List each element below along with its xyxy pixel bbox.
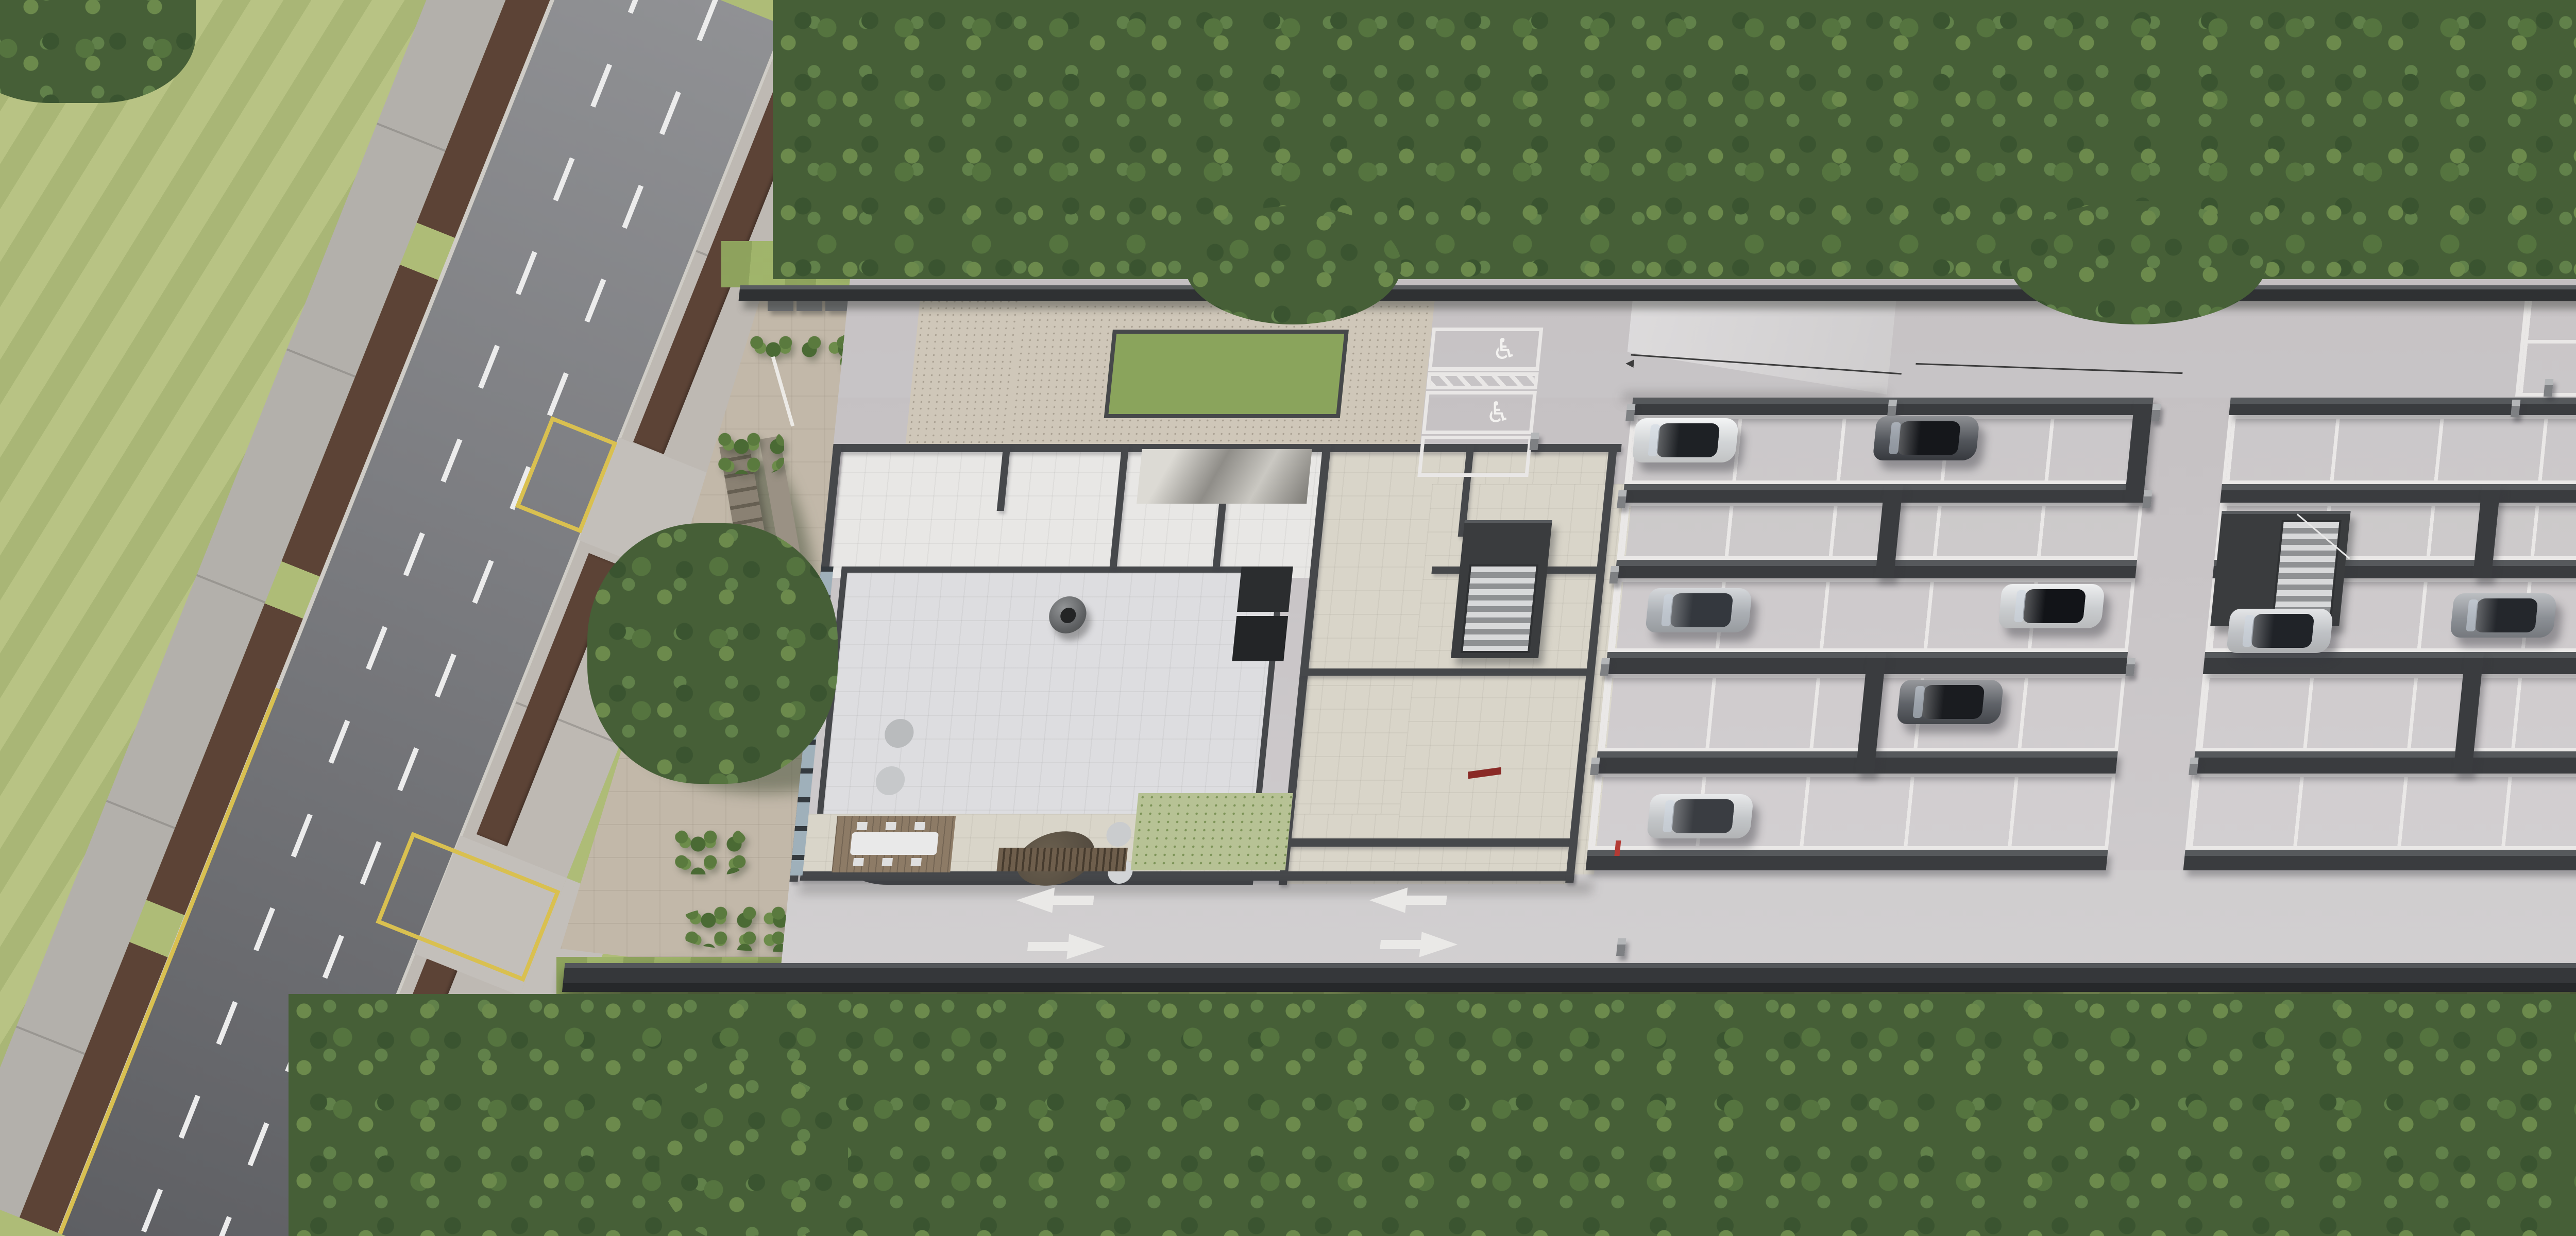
tree-sidewalk-south	[659, 1074, 848, 1236]
trees-corner-top-left	[0, 0, 196, 103]
canopy-bump	[2009, 201, 2267, 324]
tree-plaza	[587, 523, 838, 784]
tree-canopies	[0, 0, 2576, 1236]
trees-bottom	[289, 994, 2576, 1236]
trees-top	[773, 0, 2576, 279]
canopy-bump	[1185, 206, 1401, 324]
aerial-architectural-render: ♿♿	[0, 0, 2576, 1236]
